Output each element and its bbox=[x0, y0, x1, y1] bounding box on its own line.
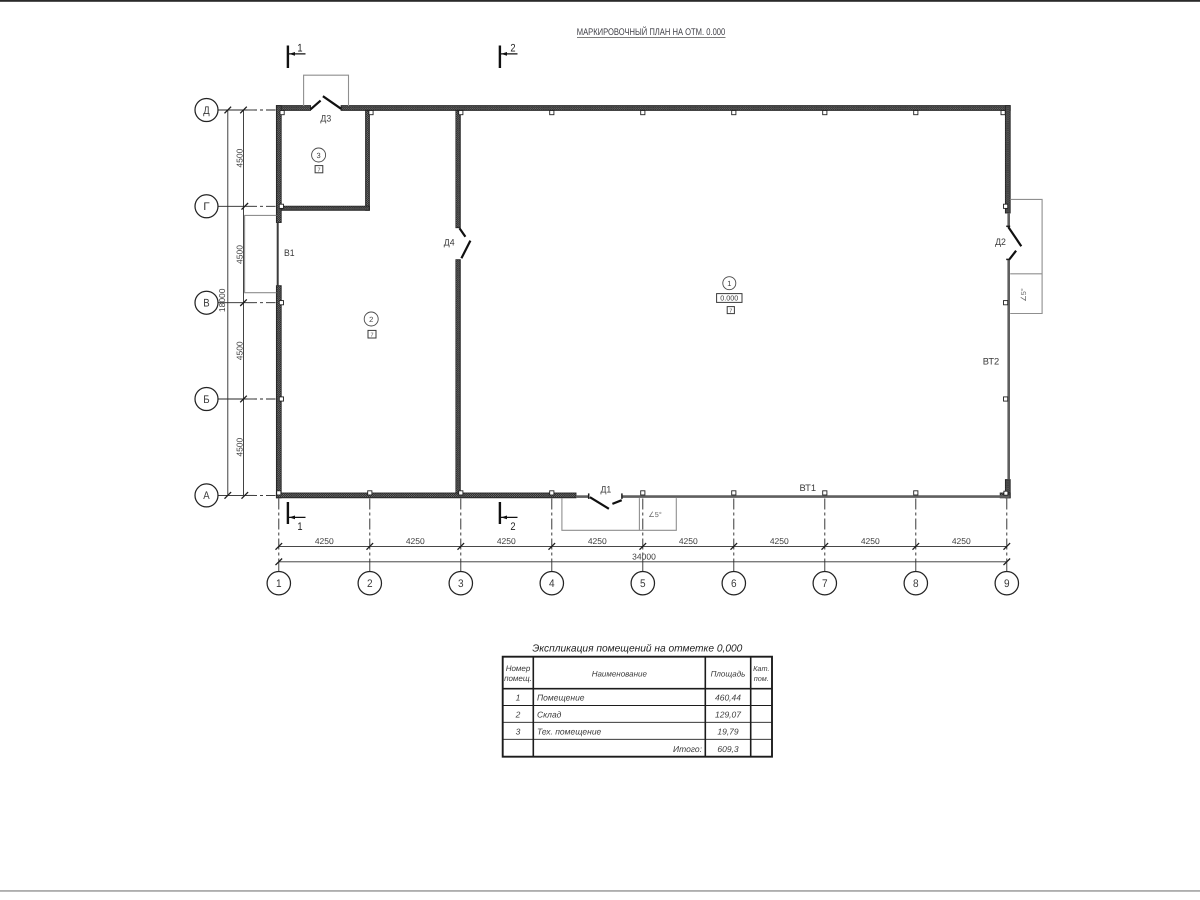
svg-text:Б: Б bbox=[203, 394, 209, 406]
svg-text:129,07: 129,07 bbox=[715, 710, 741, 720]
svg-text:Наименование: Наименование bbox=[592, 670, 648, 679]
svg-text:В1: В1 bbox=[284, 247, 295, 258]
svg-text:4500: 4500 bbox=[234, 148, 244, 167]
svg-text:помещ.: помещ. bbox=[504, 674, 532, 683]
svg-text:4250: 4250 bbox=[497, 536, 516, 546]
svg-text:4500: 4500 bbox=[234, 437, 244, 456]
svg-text:Площадь: Площадь bbox=[711, 670, 746, 679]
svg-text:Д4: Д4 bbox=[444, 236, 455, 247]
svg-text:4250: 4250 bbox=[588, 536, 607, 546]
svg-text:3: 3 bbox=[458, 578, 464, 590]
svg-text:∠5°: ∠5° bbox=[1019, 288, 1028, 302]
svg-text:2: 2 bbox=[510, 43, 515, 55]
svg-text:4250: 4250 bbox=[679, 536, 698, 546]
svg-text:3: 3 bbox=[516, 727, 521, 737]
svg-text:Д3: Д3 bbox=[320, 113, 331, 124]
svg-text:460,44: 460,44 bbox=[715, 693, 741, 703]
svg-text:4500: 4500 bbox=[234, 341, 244, 360]
svg-text:4500: 4500 bbox=[234, 245, 244, 264]
svg-text:4: 4 bbox=[549, 578, 555, 590]
svg-text:19,79: 19,79 bbox=[717, 727, 739, 737]
svg-text:1: 1 bbox=[516, 693, 521, 703]
svg-text:9: 9 bbox=[1004, 578, 1010, 590]
svg-text:18000: 18000 bbox=[217, 288, 227, 312]
svg-text:1: 1 bbox=[276, 578, 282, 590]
svg-text:1: 1 bbox=[297, 521, 302, 533]
svg-text:пом.: пом. bbox=[754, 674, 769, 683]
svg-text:Кат.: Кат. bbox=[753, 664, 769, 673]
svg-text:1: 1 bbox=[297, 43, 302, 55]
svg-text:Экспликация помещений на отмет: Экспликация помещений на отметке 0,000 bbox=[532, 644, 742, 655]
svg-text:Склад: Склад bbox=[537, 710, 562, 720]
svg-text:5: 5 bbox=[640, 578, 646, 590]
svg-text:∠5°: ∠5° bbox=[648, 510, 662, 519]
svg-text:1: 1 bbox=[727, 279, 731, 288]
svg-text:4250: 4250 bbox=[315, 536, 334, 546]
svg-text:7: 7 bbox=[317, 168, 320, 174]
svg-text:ВТ2: ВТ2 bbox=[983, 356, 1000, 367]
svg-text:2: 2 bbox=[515, 710, 521, 720]
svg-text:2: 2 bbox=[367, 578, 373, 590]
svg-text:В: В bbox=[203, 298, 209, 310]
svg-text:6: 6 bbox=[731, 578, 737, 590]
svg-text:3: 3 bbox=[317, 151, 321, 160]
svg-text:7: 7 bbox=[822, 578, 828, 590]
svg-text:Д1: Д1 bbox=[601, 483, 612, 494]
svg-text:2: 2 bbox=[510, 521, 515, 533]
svg-text:2: 2 bbox=[369, 315, 373, 324]
svg-text:Тех. помещение: Тех. помещение bbox=[537, 727, 602, 737]
svg-text:Помещение: Помещение bbox=[537, 693, 585, 703]
svg-text:Г: Г bbox=[203, 201, 209, 213]
svg-text:ВТ1: ВТ1 bbox=[800, 482, 817, 493]
svg-text:А: А bbox=[203, 490, 210, 502]
svg-text:4250: 4250 bbox=[770, 536, 789, 546]
svg-text:Д2: Д2 bbox=[995, 236, 1006, 247]
svg-text:4250: 4250 bbox=[861, 536, 880, 546]
svg-text:34000: 34000 bbox=[632, 552, 656, 562]
svg-text:8: 8 bbox=[913, 578, 919, 590]
svg-text:609,3: 609,3 bbox=[717, 744, 739, 754]
svg-text:4250: 4250 bbox=[406, 536, 425, 546]
svg-text:7: 7 bbox=[729, 308, 732, 314]
svg-text:4250: 4250 bbox=[952, 536, 971, 546]
svg-text:Номер: Номер bbox=[506, 664, 531, 673]
svg-text:МАРКИРОВОЧНЫЙ ПЛАН НА ОТМ. 0.0: МАРКИРОВОЧНЫЙ ПЛАН НА ОТМ. 0.000 bbox=[577, 26, 726, 38]
svg-text:7: 7 bbox=[370, 333, 373, 339]
svg-text:Итого:: Итого: bbox=[673, 744, 703, 754]
svg-text:0.000: 0.000 bbox=[720, 294, 738, 303]
svg-text:Д: Д bbox=[203, 105, 210, 117]
